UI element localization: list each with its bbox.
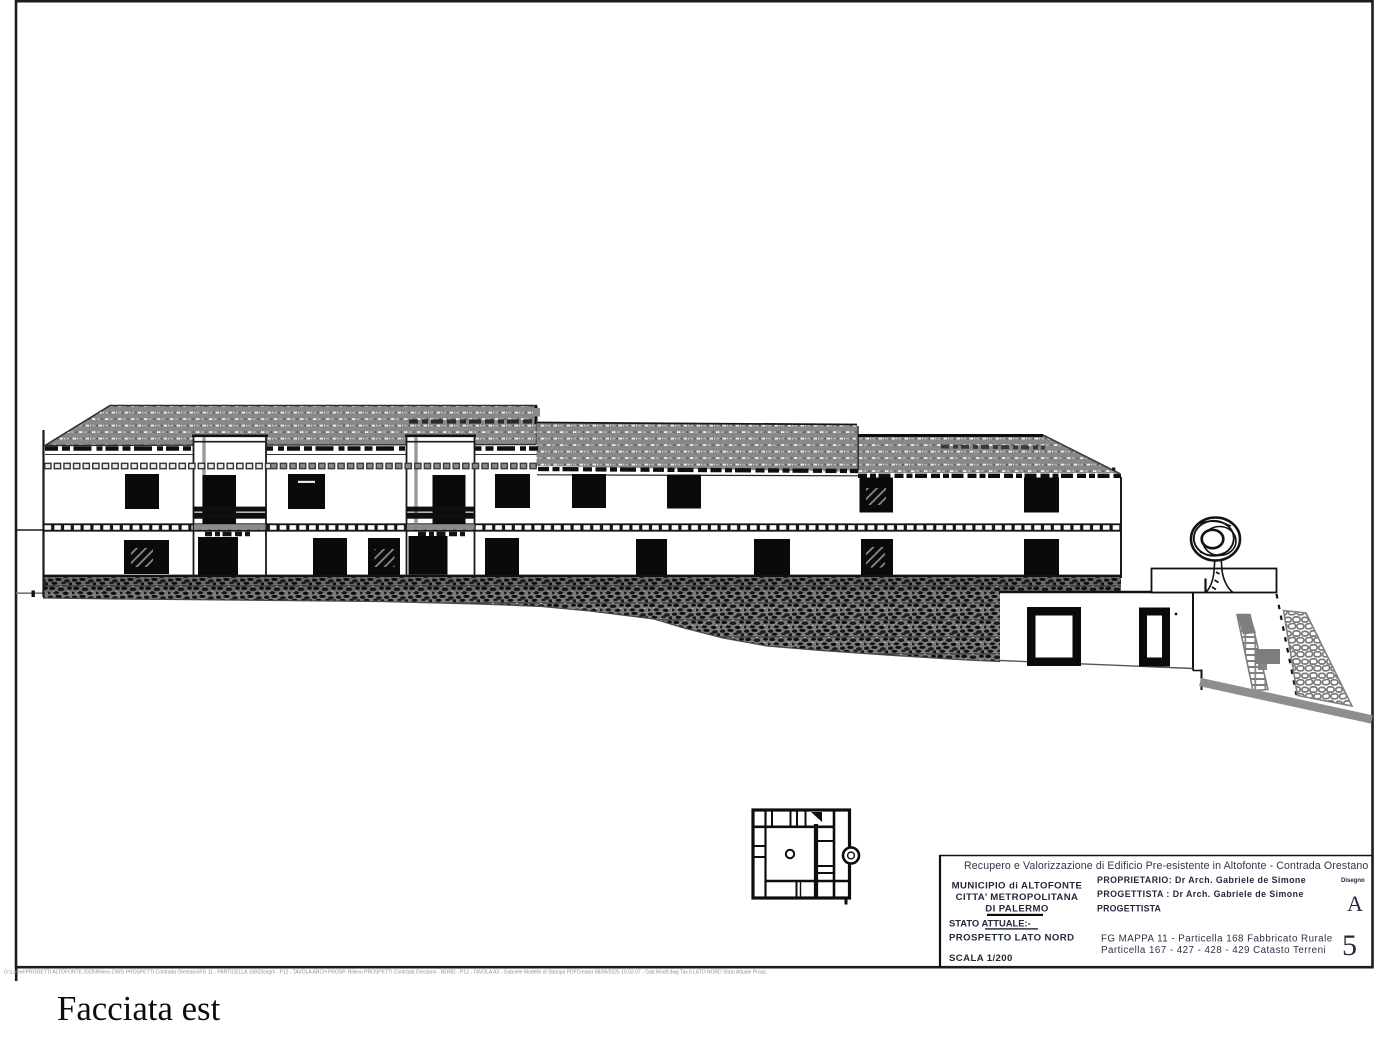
svg-text:Recupero e Valorizzazione di E: Recupero e Valorizzazione di Edificio Pr… <box>964 860 1368 872</box>
svg-text:DI PALERMO: DI PALERMO <box>985 904 1049 915</box>
svg-text:Particella 167 - 427 - 428 - 4: Particella 167 - 427 - 428 - 429 Catasto… <box>1101 945 1326 956</box>
svg-text:FG MAPPA 11 - Particella 168: FG MAPPA 11 - Particella 168 Fabbricato … <box>1101 934 1333 945</box>
svg-text:G:\Lavori\PROGETTI ALTOFONTE 2: G:\Lavori\PROGETTI ALTOFONTE 2025\Riliev… <box>4 970 767 976</box>
svg-text:A: A <box>1347 891 1363 916</box>
svg-text:STATO ATTUALE:-: STATO ATTUALE:- <box>949 918 1031 929</box>
svg-text:Disegno: Disegno <box>1341 878 1365 884</box>
svg-text:SCALA 1/200: SCALA 1/200 <box>949 953 1013 964</box>
svg-text:CITTA’ METROPOLITANA: CITTA’ METROPOLITANA <box>956 892 1079 903</box>
svg-text:Facciata est: Facciata est <box>57 989 221 1028</box>
svg-text:PROGETTISTA: PROGETTISTA <box>1097 904 1162 914</box>
svg-text:PROPRIETARIO: Dr Arch. Gabriel: PROPRIETARIO: Dr Arch. Gabriele de Simon… <box>1097 875 1306 885</box>
svg-text:PROGETTISTA : Dr Arch. Gabrie: PROGETTISTA : Dr Arch. Gabriele de Simon… <box>1097 889 1304 899</box>
svg-text:PROSPETTO LATO NORD: PROSPETTO LATO NORD <box>949 933 1074 944</box>
svg-text:5: 5 <box>1342 929 1357 962</box>
svg-text:MUNICIPIO di ALTOFONTE: MUNICIPIO di ALTOFONTE <box>952 881 1083 892</box>
